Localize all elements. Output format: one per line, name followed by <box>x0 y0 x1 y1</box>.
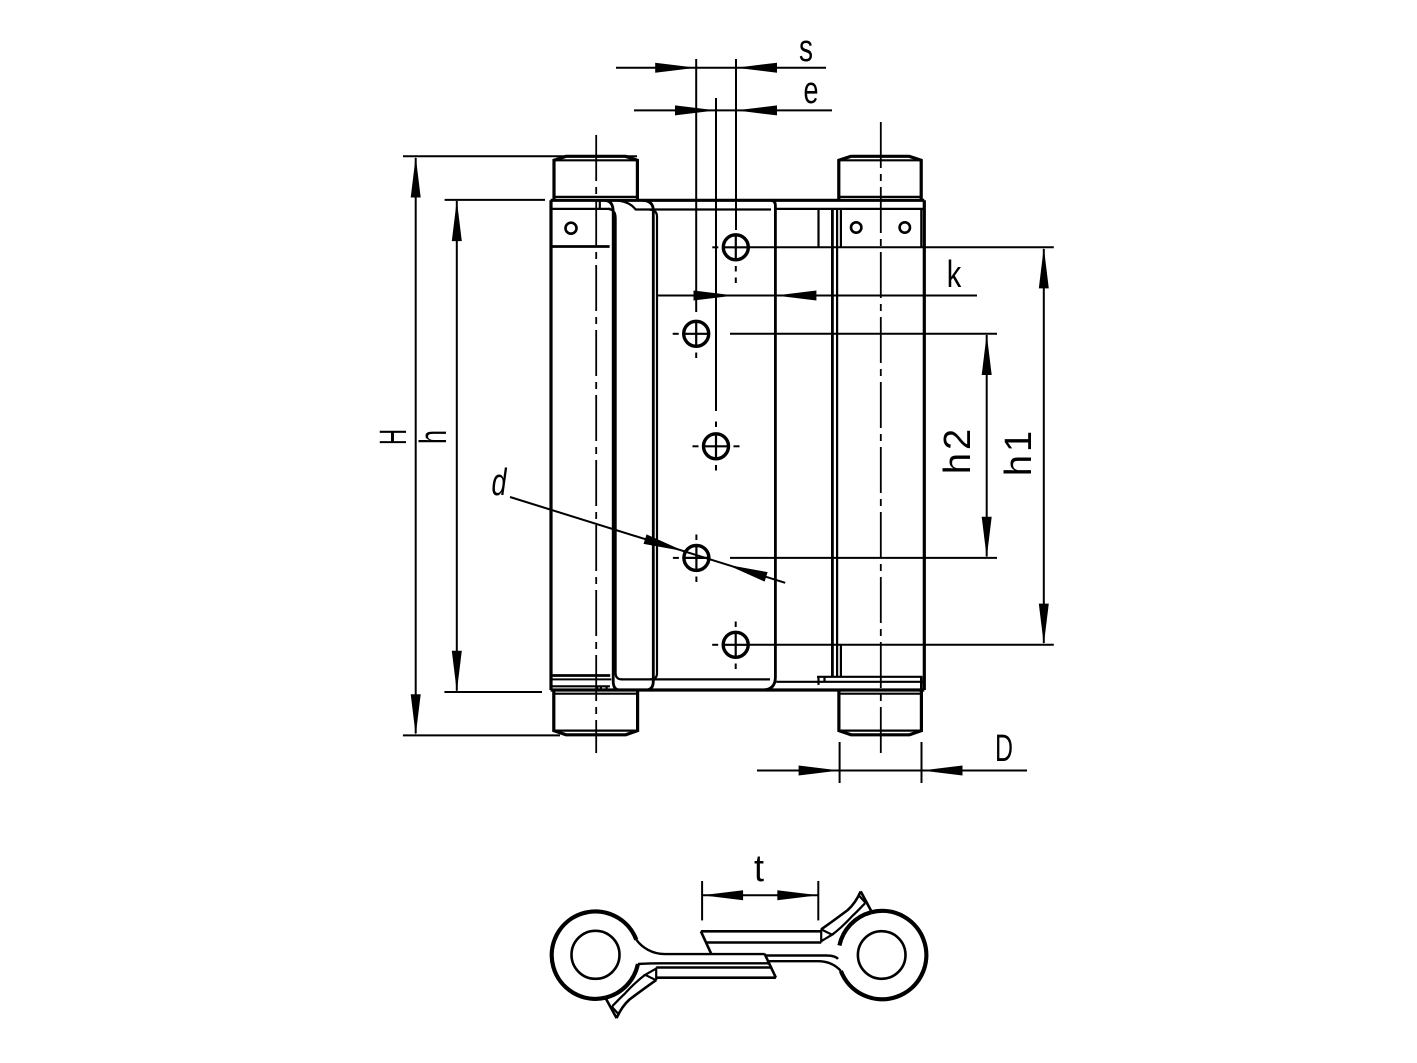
svg-text:h2: h2 <box>937 426 979 474</box>
svg-text:s: s <box>799 28 813 70</box>
svg-text:h: h <box>413 430 455 444</box>
svg-text:d: d <box>492 462 508 504</box>
svg-text:h1: h1 <box>998 428 1040 476</box>
svg-text:e: e <box>804 70 819 112</box>
svg-text:t: t <box>754 848 764 890</box>
svg-text:H: H <box>373 429 415 445</box>
svg-text:D: D <box>995 728 1013 770</box>
svg-text:k: k <box>947 254 962 296</box>
